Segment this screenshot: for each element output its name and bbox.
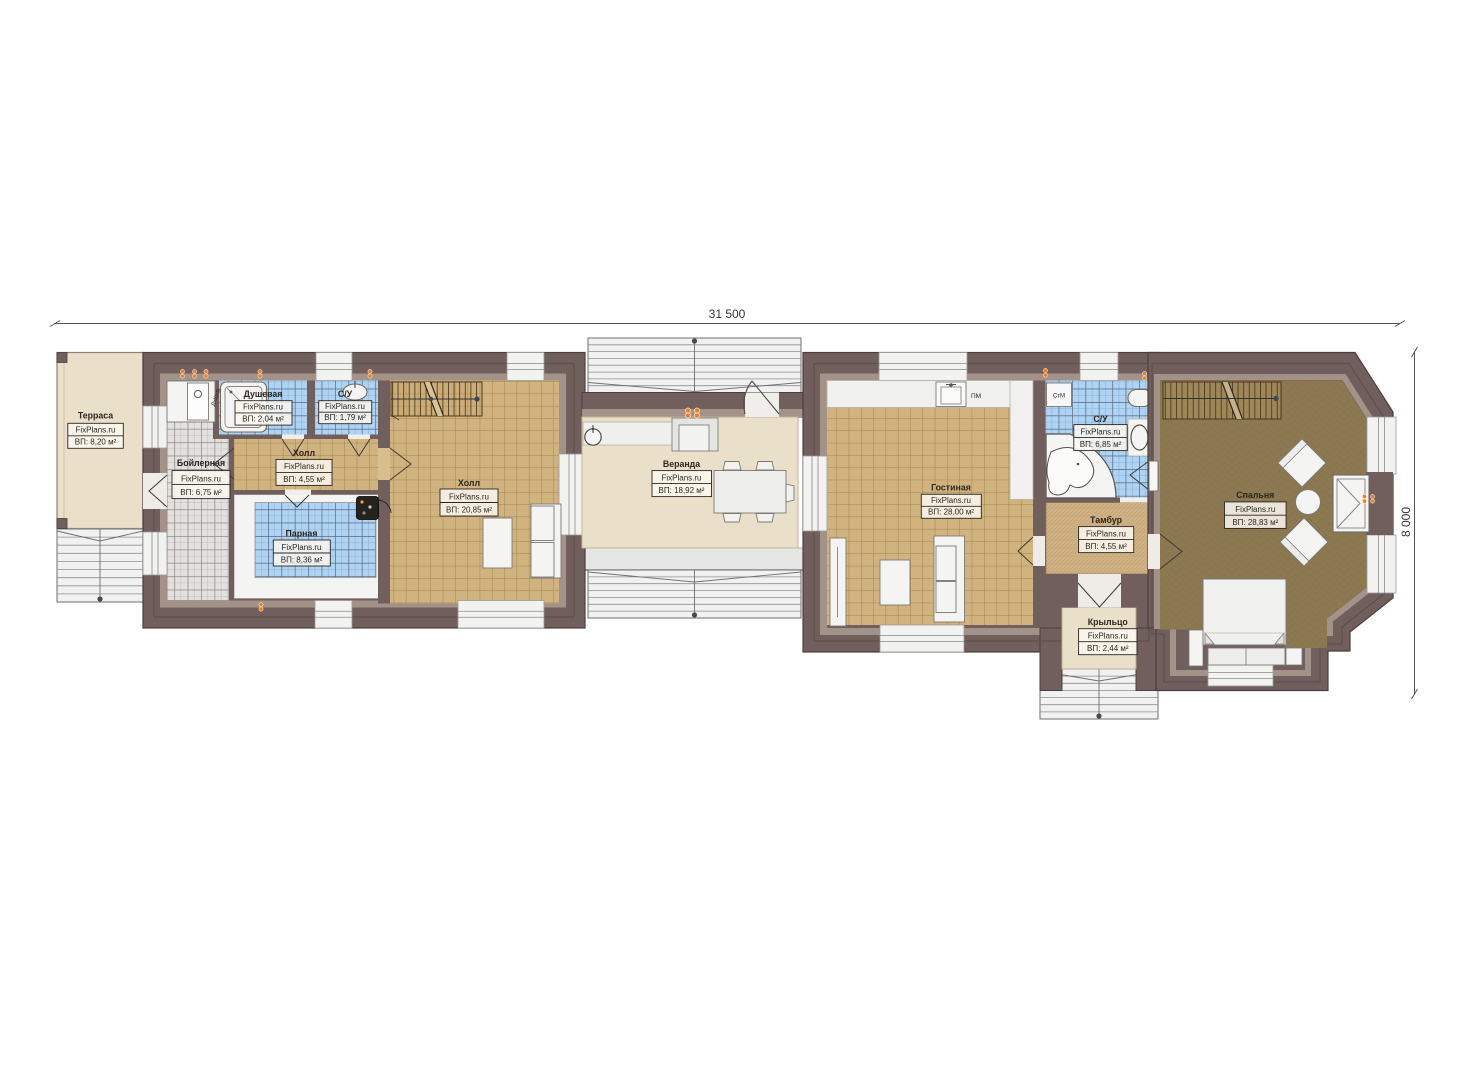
svg-text:ВП: 20,85 м²: ВП: 20,85 м² <box>446 505 492 514</box>
svg-text:FixPlans.ru: FixPlans.ru <box>281 543 321 552</box>
svg-text:Веранда: Веранда <box>663 459 700 469</box>
svg-text:ВП: 1,79 м²: ВП: 1,79 м² <box>324 413 366 422</box>
svg-text:ВП: 18,92 м²: ВП: 18,92 м² <box>659 486 705 495</box>
svg-text:ПМ: ПМ <box>971 393 981 400</box>
svg-text:Крыльцо: Крыльцо <box>1088 617 1129 627</box>
svg-text:FixPlans.ru: FixPlans.ru <box>1235 505 1275 514</box>
svg-text:Парная: Парная <box>286 529 318 539</box>
svg-text:8 000: 8 000 <box>1399 507 1413 537</box>
svg-text:31 500: 31 500 <box>709 307 746 321</box>
svg-text:FixPlans.ru: FixPlans.ru <box>1080 427 1120 436</box>
svg-text:FixPlans.ru: FixPlans.ru <box>181 474 221 483</box>
svg-text:ВП: 8,20 м²: ВП: 8,20 м² <box>75 438 117 447</box>
svg-text:FixPlans.ru: FixPlans.ru <box>449 492 489 501</box>
svg-text:ВП: 2,44 м²: ВП: 2,44 м² <box>1087 644 1129 653</box>
svg-text:FixPlans.ru: FixPlans.ru <box>243 403 283 412</box>
svg-text:СтМ: СтМ <box>1053 394 1065 400</box>
svg-text:ВП: 4,55 м²: ВП: 4,55 м² <box>283 475 325 484</box>
svg-text:Душевая: Душевая <box>244 389 283 399</box>
svg-text:Спальня: Спальня <box>1236 490 1274 500</box>
svg-text:ВП: 6,75 м²: ВП: 6,75 м² <box>180 488 222 497</box>
svg-text:ВП: 8,36 м²: ВП: 8,36 м² <box>281 555 323 564</box>
svg-text:Терраса: Терраса <box>78 411 113 421</box>
svg-text:С/У: С/У <box>1093 414 1108 424</box>
svg-text:FixPlans.ru: FixPlans.ru <box>931 496 971 505</box>
svg-text:Тамбур: Тамбур <box>1090 515 1123 525</box>
svg-text:FixPlans.ru: FixPlans.ru <box>1088 632 1128 641</box>
svg-text:ВП: 28,00 м²: ВП: 28,00 м² <box>928 508 974 517</box>
svg-text:FixPlans.ru: FixPlans.ru <box>284 462 324 471</box>
svg-text:Холл: Холл <box>458 478 480 488</box>
svg-text:ВП: 4,55 м²: ВП: 4,55 м² <box>1085 542 1127 551</box>
svg-text:FixPlans.ru: FixPlans.ru <box>1086 529 1126 538</box>
svg-text:ВП: 6,85 м²: ВП: 6,85 м² <box>1080 440 1122 449</box>
svg-text:FixPlans.ru: FixPlans.ru <box>75 426 115 435</box>
svg-text:FixPlans.ru: FixPlans.ru <box>661 473 701 482</box>
svg-text:Гостиная: Гостиная <box>931 483 971 493</box>
svg-text:ВП: 2,04 м²: ВП: 2,04 м² <box>242 415 284 424</box>
svg-text:С/У: С/У <box>338 389 353 399</box>
svg-text:Холл: Холл <box>293 448 315 458</box>
svg-text:ВП: 28,83 м²: ВП: 28,83 м² <box>1232 518 1278 527</box>
svg-text:FixPlans.ru: FixPlans.ru <box>325 402 365 411</box>
svg-text:Бойлерная: Бойлерная <box>177 458 225 468</box>
